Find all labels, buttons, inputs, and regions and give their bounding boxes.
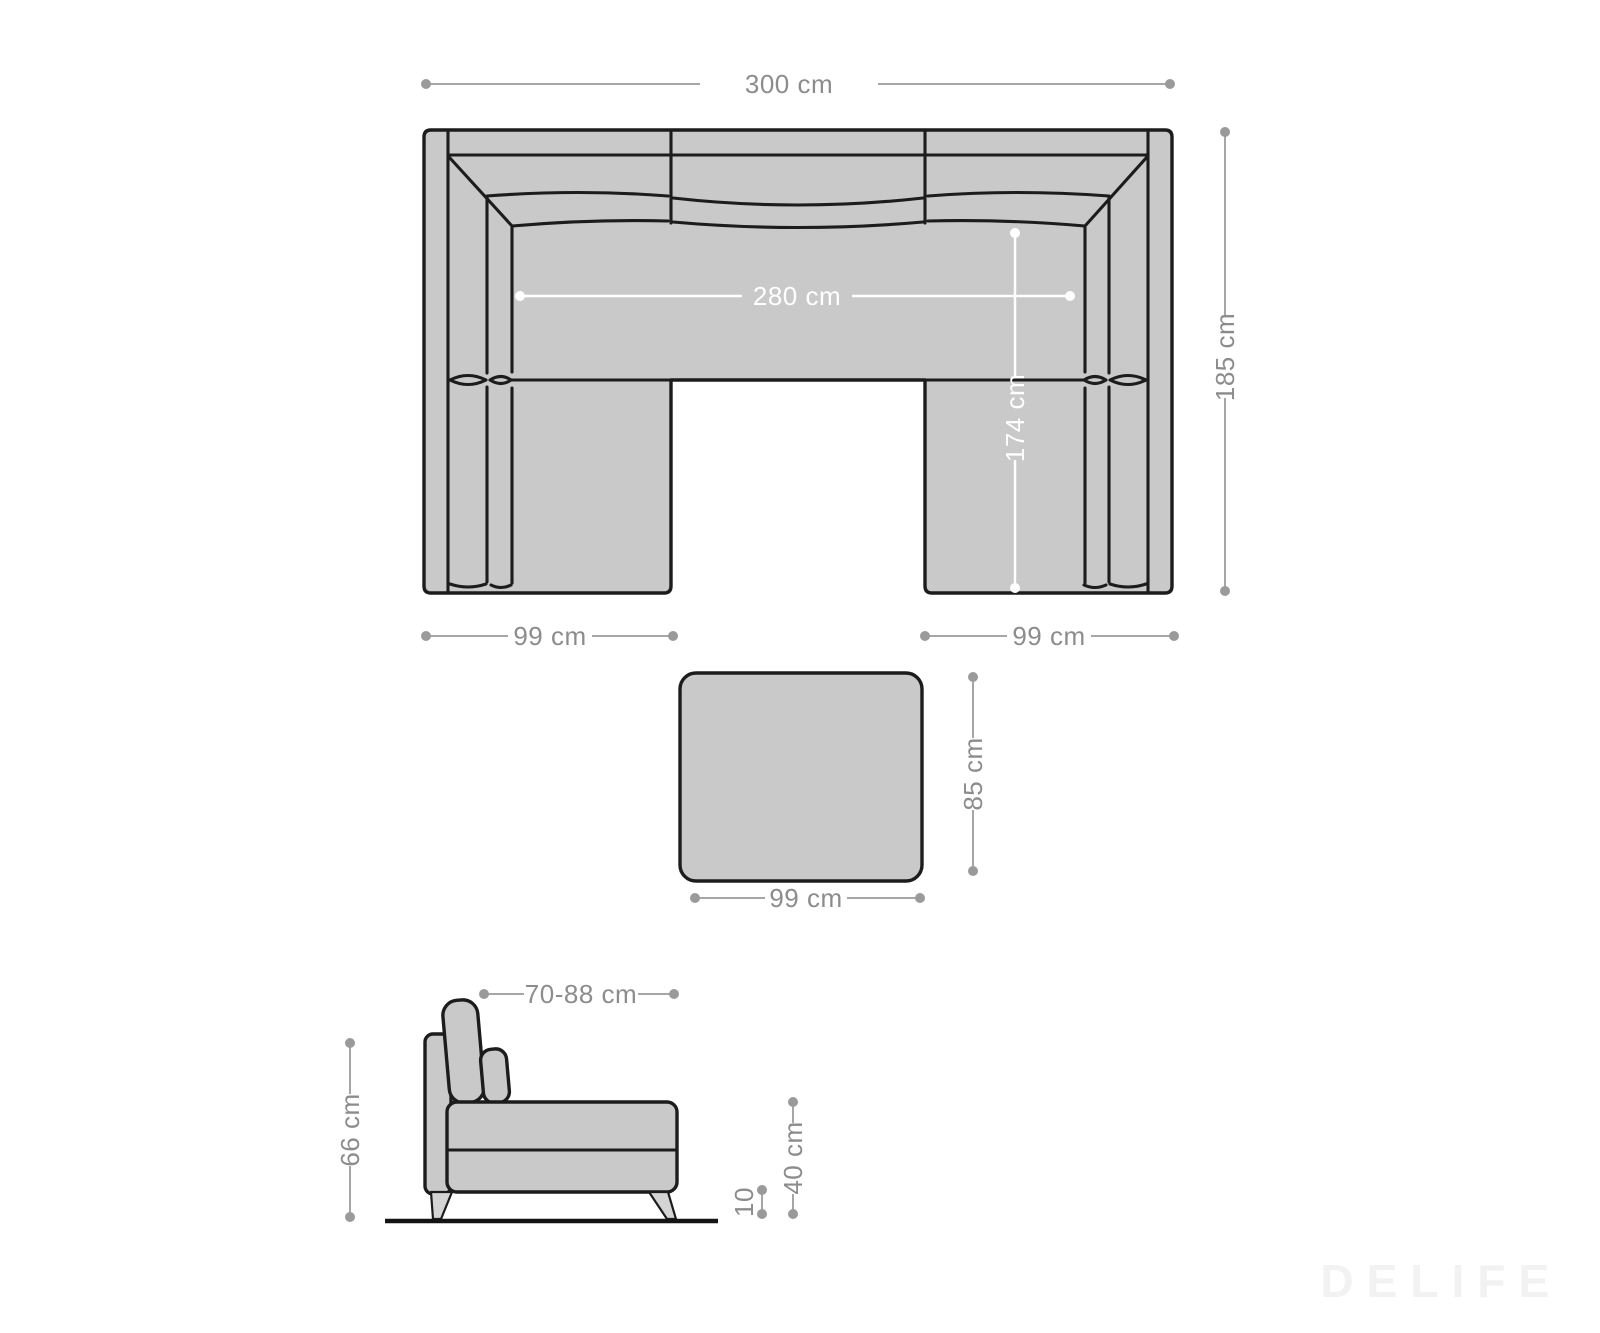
dim-ottoman-depth: 85 cm <box>958 672 988 876</box>
left-element-width-label: 99 cm <box>513 621 586 651</box>
ottoman-depth-label: 85 cm <box>958 737 988 810</box>
overall-width-label: 300 cm <box>745 69 833 99</box>
ottoman-width-label: 99 cm <box>769 883 842 913</box>
brand-watermark: DELIFE <box>1320 1255 1562 1307</box>
ottoman-top-view: 85 cm 99 cm <box>680 672 988 913</box>
overall-depth-label: 185 cm <box>1210 313 1240 401</box>
dimension-diagram-page: 280 cm 174 cm 300 cm 185 cm 99 cm <box>0 0 1600 1333</box>
side-lumbar-cushion <box>480 1048 511 1104</box>
seat-height-label: 40 cm <box>778 1121 808 1194</box>
dim-seat-height: 40 cm <box>778 1097 808 1219</box>
seat-depth-range-label: 70-88 cm <box>525 979 637 1009</box>
total-height-label: 66 cm <box>335 1093 365 1166</box>
side-seat-body <box>447 1102 677 1192</box>
sofa-side-view: 70-88 cm 66 cm 40 cm 10 <box>335 979 808 1222</box>
dim-total-height: 66 cm <box>335 1038 365 1222</box>
dim-leg-height: 10 <box>729 1185 767 1219</box>
sofa-top-view: 280 cm 174 cm <box>424 130 1172 593</box>
furniture-dimension-diagram: 280 cm 174 cm 300 cm 185 cm 99 cm <box>0 0 1600 1333</box>
right-element-width-label: 99 cm <box>1012 621 1085 651</box>
dim-right-element-width: 99 cm <box>920 621 1179 651</box>
side-front-leg <box>649 1192 676 1219</box>
side-rear-leg <box>431 1192 452 1219</box>
dim-left-element-width: 99 cm <box>421 621 678 651</box>
dim-overall-depth: 185 cm <box>1210 127 1240 596</box>
dim-seat-depth-range: 70-88 cm <box>479 979 679 1009</box>
dim-overall-width: 300 cm <box>421 69 1175 99</box>
sofa-top-view-body <box>424 130 1172 593</box>
leg-height-label: 10 <box>729 1187 759 1217</box>
ottoman-body <box>680 673 922 881</box>
dim-ottoman-width: 99 cm <box>690 883 925 913</box>
inner-depth-label: 174 cm <box>1000 374 1030 462</box>
side-back-cushion <box>442 999 486 1105</box>
inner-width-label: 280 cm <box>753 281 841 311</box>
